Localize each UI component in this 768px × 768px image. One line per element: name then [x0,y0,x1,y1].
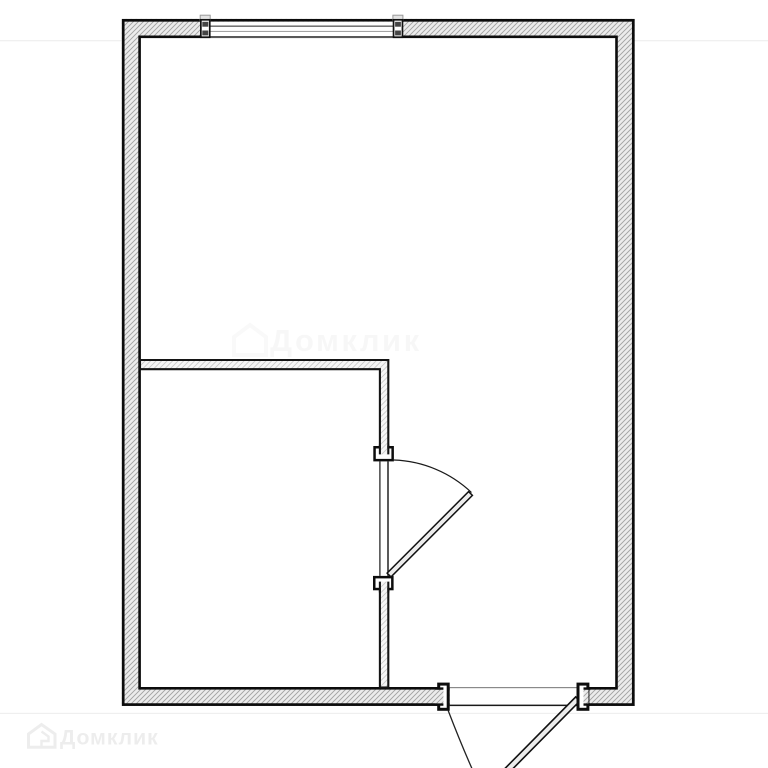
svg-text:Домклик: Домклик [60,726,159,750]
svg-text:Домклик: Домклик [270,323,422,358]
